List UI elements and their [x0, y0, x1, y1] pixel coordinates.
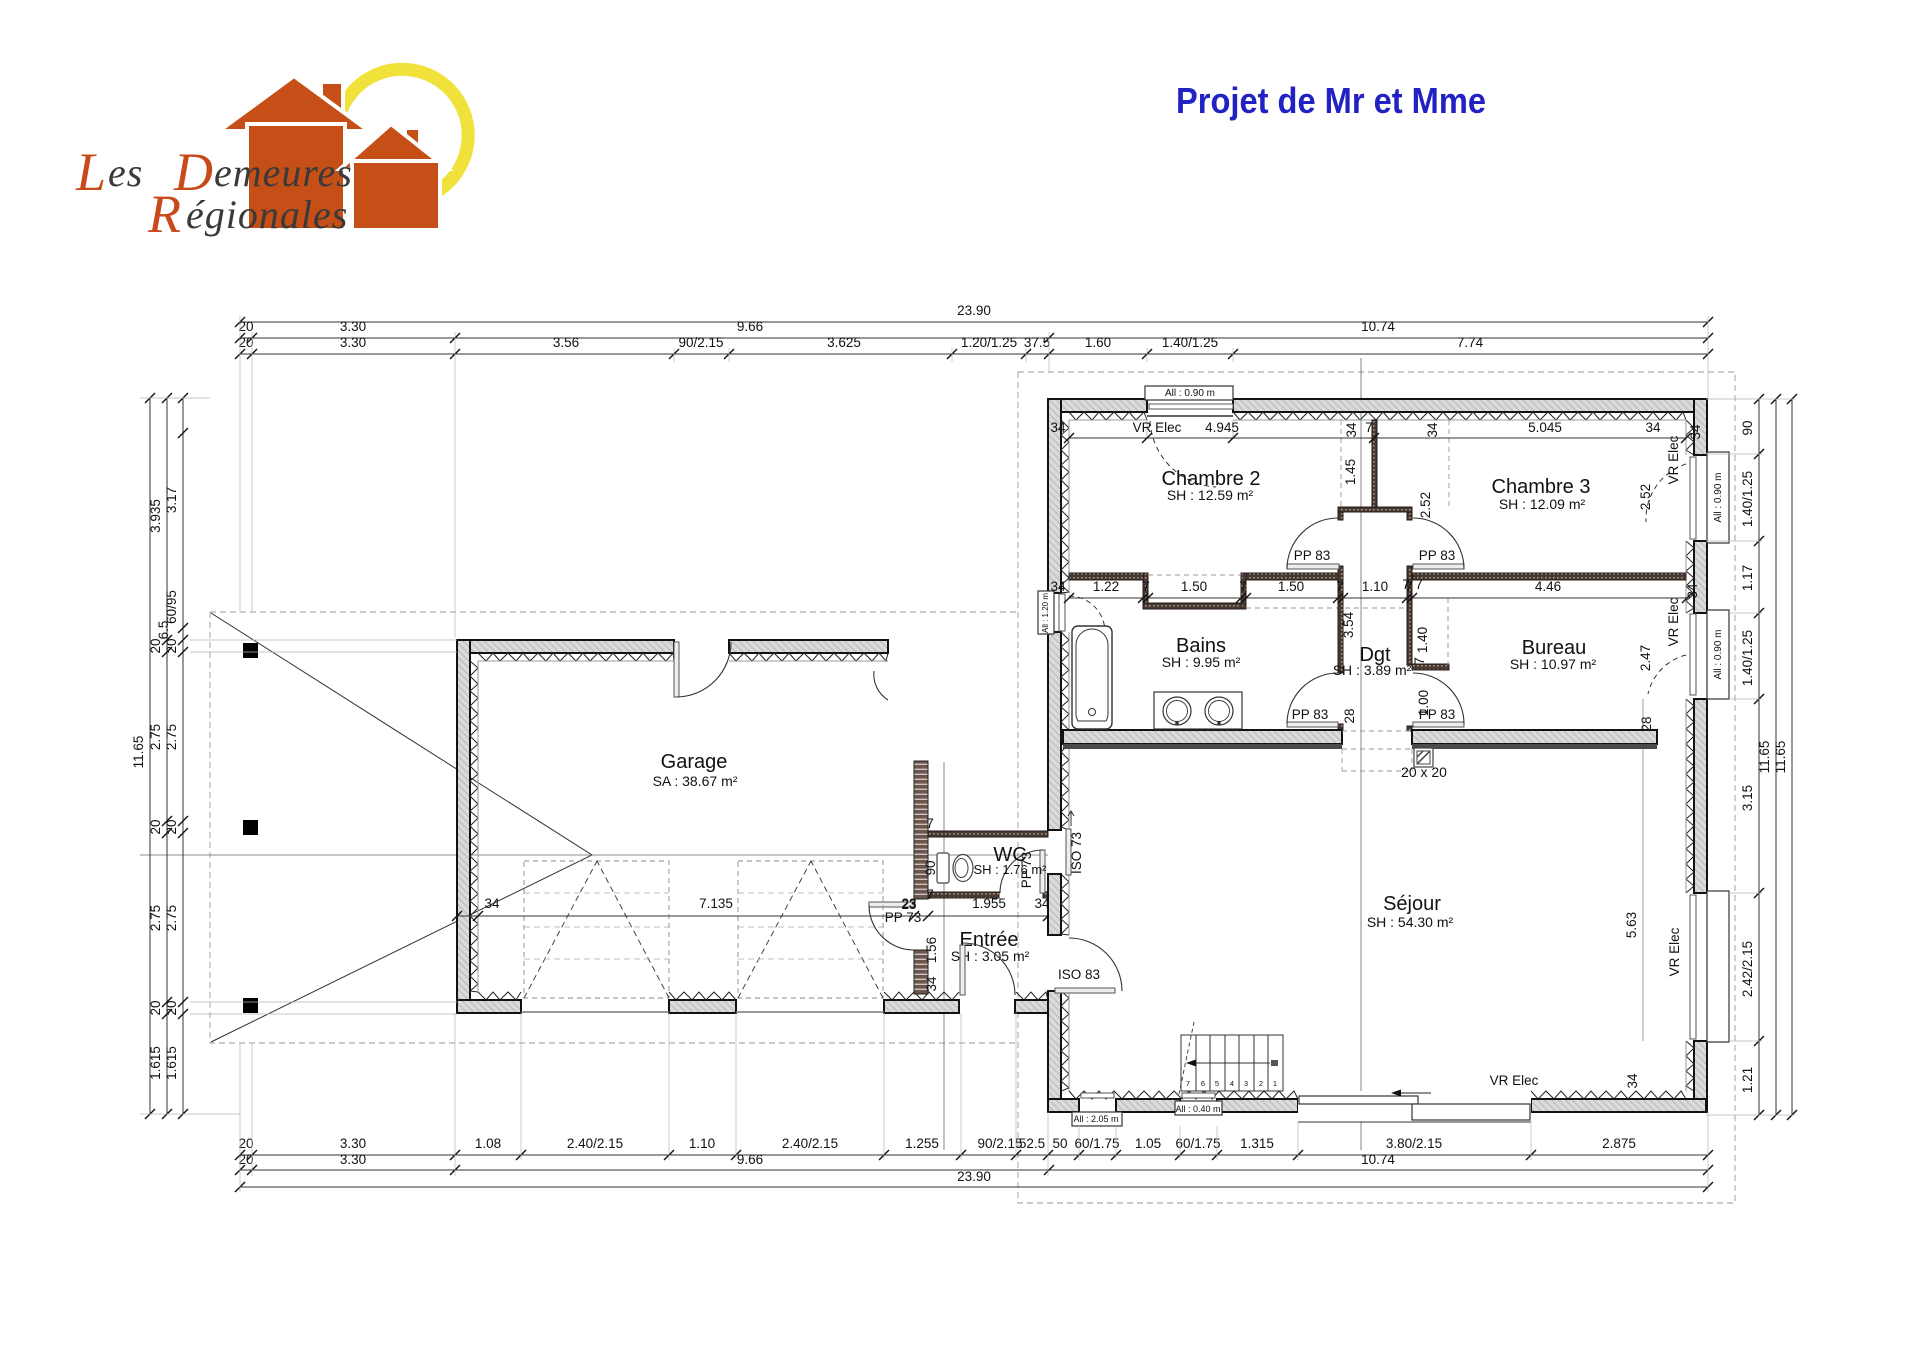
svg-text:20: 20 [238, 1152, 253, 1167]
svg-text:1: 1 [1273, 1079, 1277, 1088]
svg-text:3.15: 3.15 [1740, 785, 1755, 811]
svg-text:All : 1.20 m: All : 1.20 m [1041, 593, 1050, 633]
svg-text:7: 7 [926, 887, 934, 902]
svg-text:34: 34 [1685, 583, 1700, 599]
svg-text:34: 34 [1625, 1073, 1640, 1089]
svg-text:SH : 9.95 m²: SH : 9.95 m² [1162, 654, 1241, 670]
svg-text:2.75: 2.75 [164, 905, 179, 931]
svg-text:9.66: 9.66 [737, 319, 763, 334]
svg-text:PP 73: PP 73 [1019, 852, 1034, 889]
svg-text:7: 7 [1186, 1079, 1190, 1088]
svg-text:7: 7 [1415, 577, 1423, 592]
svg-text:3.56: 3.56 [553, 335, 579, 350]
svg-text:7: 7 [926, 816, 934, 831]
svg-text:PP 83: PP 83 [1294, 548, 1331, 563]
svg-text:2.52: 2.52 [1418, 492, 1433, 518]
svg-text:10.74: 10.74 [1361, 1152, 1395, 1167]
svg-text:Séjour: Séjour [1383, 893, 1441, 915]
svg-text:PP 83: PP 83 [1419, 548, 1456, 563]
svg-text:1.40/1.25: 1.40/1.25 [1740, 630, 1755, 686]
svg-text:20: 20 [164, 1000, 179, 1015]
svg-text:7: 7 [1239, 579, 1247, 594]
svg-text:52.5: 52.5 [1019, 1136, 1045, 1151]
svg-text:All : 0.90 m: All : 0.90 m [1713, 629, 1724, 679]
svg-text:1.615: 1.615 [164, 1046, 179, 1080]
svg-text:VR Elec: VR Elec [1666, 597, 1681, 646]
svg-text:2.47: 2.47 [1638, 645, 1653, 671]
svg-text:2.40/2.15: 2.40/2.15 [782, 1136, 838, 1151]
svg-text:1.60: 1.60 [1085, 335, 1111, 350]
svg-text:1.00: 1.00 [1416, 690, 1431, 716]
svg-text:1.40/1.25: 1.40/1.25 [1740, 471, 1755, 527]
svg-text:7: 7 [1412, 657, 1427, 665]
svg-text:4.46: 4.46 [1535, 579, 1561, 594]
svg-text:2.75: 2.75 [148, 905, 163, 931]
svg-text:34: 34 [1344, 422, 1359, 438]
svg-text:3.625: 3.625 [827, 335, 861, 350]
svg-text:1.10: 1.10 [1362, 579, 1388, 594]
svg-text:SH : 10.97 m²: SH : 10.97 m² [1510, 656, 1597, 672]
svg-text:3.935: 3.935 [148, 499, 163, 533]
svg-text:All : 0.90 m: All : 0.90 m [1713, 472, 1724, 522]
svg-text:23.90: 23.90 [957, 1169, 991, 1184]
svg-text:90/2.15: 90/2.15 [678, 335, 723, 350]
svg-text:1.56: 1.56 [924, 937, 939, 963]
svg-text:Garage: Garage [661, 751, 728, 773]
svg-text:Chambre 3: Chambre 3 [1492, 476, 1591, 498]
svg-text:VR Elec: VR Elec [1666, 435, 1681, 484]
svg-text:5.63: 5.63 [1624, 912, 1639, 938]
svg-text:34: 34 [1425, 422, 1440, 438]
svg-text:1.315: 1.315 [1240, 1136, 1274, 1151]
svg-text:3.80/2.15: 3.80/2.15 [1386, 1136, 1442, 1151]
svg-text:VR Elec: VR Elec [1667, 927, 1682, 976]
svg-text:5: 5 [1215, 1079, 1219, 1088]
svg-text:20: 20 [164, 819, 179, 834]
svg-text:20: 20 [148, 1000, 163, 1015]
svg-text:1.05: 1.05 [1135, 1136, 1161, 1151]
svg-text:2.40/2.15: 2.40/2.15 [567, 1136, 623, 1151]
svg-text:7: 7 [1142, 579, 1150, 594]
svg-text:34: 34 [1688, 424, 1703, 440]
svg-text:All : 0.40 m: All : 0.40 m [1175, 1104, 1220, 1114]
svg-text:SH : 1.76 m²: SH : 1.76 m² [974, 862, 1048, 877]
svg-text:Projet de Mr et Mme: Projet de Mr et Mme [1176, 80, 1486, 121]
svg-text:11.65: 11.65 [1757, 741, 1772, 774]
svg-text:1.10: 1.10 [689, 1136, 715, 1151]
svg-text:20: 20 [148, 819, 163, 834]
svg-text:2.75: 2.75 [148, 724, 163, 750]
svg-text:1.255: 1.255 [905, 1136, 939, 1151]
svg-text:3.30: 3.30 [340, 1152, 366, 1167]
svg-text:3.54: 3.54 [1341, 611, 1356, 638]
svg-text:1.40/1.25: 1.40/1.25 [1162, 335, 1218, 350]
svg-text:SH : 12.59 m²: SH : 12.59 m² [1167, 487, 1254, 503]
svg-text:60/1.75: 60/1.75 [1175, 1136, 1220, 1151]
svg-text:L: L [75, 142, 107, 202]
svg-text:SA : 38.67 m²: SA : 38.67 m² [653, 773, 738, 789]
svg-text:1.50: 1.50 [1181, 579, 1207, 594]
svg-text:34: 34 [1645, 420, 1661, 435]
svg-text:3.17: 3.17 [164, 487, 179, 513]
svg-text:60/1.75: 60/1.75 [1074, 1136, 1119, 1151]
svg-text:6: 6 [1201, 1079, 1205, 1088]
svg-text:ISO 73: ISO 73 [1069, 832, 1084, 874]
svg-text:4: 4 [1230, 1079, 1234, 1088]
svg-text:20 x 20: 20 x 20 [1401, 764, 1447, 780]
svg-text:R: R [147, 184, 182, 244]
svg-text:VR Elec: VR Elec [1133, 420, 1182, 435]
svg-text:PP 83: PP 83 [1292, 707, 1329, 722]
svg-text:3.30: 3.30 [340, 335, 366, 350]
svg-text:20: 20 [238, 319, 253, 334]
svg-text:1.50: 1.50 [1278, 579, 1304, 594]
svg-text:VR Elec: VR Elec [1490, 1073, 1539, 1088]
svg-text:1.22: 1.22 [1093, 579, 1119, 594]
svg-text:All : 0.90 m: All : 0.90 m [1165, 388, 1215, 399]
svg-text:23.90: 23.90 [957, 303, 991, 318]
svg-text:1.21: 1.21 [1740, 1067, 1755, 1093]
svg-text:34: 34 [924, 976, 939, 992]
svg-text:7.135: 7.135 [699, 896, 733, 911]
svg-text:6.5: 6.5 [156, 621, 171, 640]
svg-text:1.615: 1.615 [148, 1046, 163, 1080]
svg-text:es: es [108, 150, 143, 195]
svg-text:60/95: 60/95 [164, 590, 179, 624]
svg-text:34: 34 [1050, 420, 1066, 435]
svg-text:20: 20 [164, 638, 179, 653]
svg-text:SH : 3.89 m²: SH : 3.89 m² [1333, 662, 1412, 678]
svg-text:1.08: 1.08 [475, 1136, 501, 1151]
svg-text:4.945: 4.945 [1205, 420, 1239, 435]
svg-text:10.74: 10.74 [1361, 319, 1395, 334]
svg-text:1.20/1.25: 1.20/1.25 [961, 335, 1017, 350]
svg-text:2: 2 [1259, 1079, 1263, 1088]
svg-text:ISO 83: ISO 83 [1058, 967, 1100, 982]
svg-text:All : 2.05 m: All : 2.05 m [1073, 1114, 1118, 1124]
svg-text:emeures: emeures [214, 150, 353, 195]
svg-text:11.65: 11.65 [131, 736, 146, 769]
svg-text:3.30: 3.30 [340, 1136, 366, 1151]
svg-text:SH : 54.30 m²: SH : 54.30 m² [1367, 914, 1454, 930]
svg-text:20: 20 [148, 638, 163, 653]
svg-text:50: 50 [1052, 1136, 1067, 1151]
svg-text:7: 7 [1336, 579, 1344, 594]
svg-text:34: 34 [1050, 579, 1066, 594]
svg-text:égionales: égionales [186, 192, 348, 237]
svg-text:7.74: 7.74 [1457, 335, 1484, 350]
svg-text:11.65: 11.65 [1773, 741, 1788, 774]
svg-text:SH : 12.09 m²: SH : 12.09 m² [1499, 496, 1586, 512]
svg-text:3: 3 [1244, 1079, 1248, 1088]
svg-text:37.5: 37.5 [1024, 335, 1050, 350]
svg-text:PP 73: PP 73 [885, 910, 922, 925]
svg-text:9.66: 9.66 [737, 1152, 763, 1167]
svg-text:90: 90 [1740, 420, 1755, 435]
svg-text:20: 20 [238, 1136, 253, 1151]
svg-text:7: 7 [1402, 577, 1410, 592]
svg-text:3.30: 3.30 [340, 319, 366, 334]
svg-text:1.45: 1.45 [1343, 459, 1358, 485]
svg-text:5.045: 5.045 [1528, 420, 1562, 435]
svg-text:2.42/2.15: 2.42/2.15 [1740, 941, 1755, 997]
svg-text:2.875: 2.875 [1602, 1136, 1636, 1151]
svg-text:1.17: 1.17 [1740, 565, 1755, 591]
svg-text:1.40: 1.40 [1415, 627, 1430, 653]
svg-text:90: 90 [923, 860, 938, 875]
svg-text:28: 28 [1639, 716, 1654, 731]
svg-text:20: 20 [238, 335, 253, 350]
svg-text:2.52: 2.52 [1638, 484, 1653, 510]
svg-text:28: 28 [1342, 708, 1357, 723]
svg-text:2.75: 2.75 [164, 724, 179, 750]
svg-text:7: 7 [1365, 420, 1373, 435]
svg-text:34: 34 [484, 896, 500, 911]
